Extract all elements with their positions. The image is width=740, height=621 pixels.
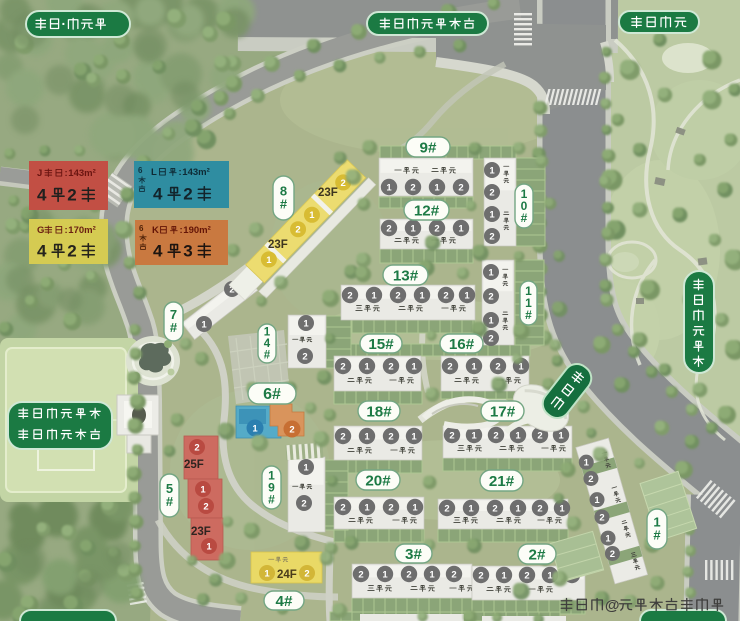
svg-text:1: 1 bbox=[558, 430, 564, 441]
svg-text:1: 1 bbox=[489, 209, 495, 220]
svg-text:2: 2 bbox=[67, 242, 76, 261]
svg-text:143m²: 143m² bbox=[68, 168, 95, 179]
svg-text:12#: 12# bbox=[414, 202, 440, 219]
svg-text:2: 2 bbox=[388, 361, 393, 372]
svg-text:1: 1 bbox=[488, 267, 494, 278]
svg-text:170m²: 170m² bbox=[68, 225, 95, 236]
svg-text:2: 2 bbox=[301, 498, 306, 509]
svg-text:2: 2 bbox=[183, 185, 192, 204]
svg-text:1: 1 bbox=[471, 361, 477, 372]
svg-text:L: L bbox=[151, 167, 157, 178]
svg-text:2: 2 bbox=[340, 431, 345, 442]
svg-text:1: 1 bbox=[584, 458, 590, 469]
svg-text:24F: 24F bbox=[277, 569, 297, 581]
svg-text:1: 1 bbox=[411, 361, 417, 372]
svg-text:1: 1 bbox=[364, 502, 370, 513]
svg-text:1: 1 bbox=[309, 210, 315, 221]
svg-text:4: 4 bbox=[153, 185, 163, 204]
svg-text:2: 2 bbox=[386, 223, 391, 234]
svg-text:1: 1 bbox=[559, 503, 565, 514]
svg-text:2: 2 bbox=[341, 178, 346, 189]
svg-text:1: 1 bbox=[303, 318, 309, 329]
svg-text:2: 2 bbox=[410, 182, 415, 193]
svg-text:2: 2 bbox=[449, 430, 454, 441]
svg-text:2: 2 bbox=[493, 430, 498, 441]
svg-text:1: 1 bbox=[364, 361, 370, 372]
svg-text:1: 1 bbox=[303, 462, 309, 473]
svg-text:2: 2 bbox=[488, 291, 493, 302]
svg-text:2: 2 bbox=[447, 361, 452, 372]
svg-text:23F: 23F bbox=[268, 239, 288, 251]
svg-text:23F: 23F bbox=[318, 187, 338, 199]
svg-text:23F: 23F bbox=[191, 526, 211, 538]
svg-text:2: 2 bbox=[289, 424, 294, 435]
svg-text:1: 1 bbox=[206, 541, 212, 552]
svg-text:1: 1 bbox=[264, 568, 270, 579]
svg-text:1: 1 bbox=[264, 327, 271, 339]
svg-text:1: 1 bbox=[471, 430, 477, 441]
svg-text:1: 1 bbox=[200, 484, 206, 495]
svg-text:1: 1 bbox=[419, 290, 425, 301]
svg-text:K: K bbox=[152, 225, 159, 236]
svg-text:6#: 6# bbox=[263, 386, 281, 403]
svg-text:1: 1 bbox=[489, 165, 495, 176]
svg-text:2: 2 bbox=[478, 570, 483, 581]
svg-text:1: 1 bbox=[429, 569, 435, 580]
svg-text:1: 1 bbox=[605, 534, 611, 545]
svg-text:2: 2 bbox=[488, 333, 493, 344]
svg-text:2: 2 bbox=[492, 503, 497, 514]
svg-text:1: 1 bbox=[468, 503, 474, 514]
svg-text:2: 2 bbox=[295, 225, 300, 236]
svg-text:2: 2 bbox=[599, 512, 604, 523]
svg-text:3: 3 bbox=[183, 242, 192, 261]
svg-text:25F: 25F bbox=[184, 459, 204, 471]
svg-text:2: 2 bbox=[524, 570, 529, 581]
svg-text:2: 2 bbox=[489, 187, 494, 198]
svg-text:1: 1 bbox=[464, 290, 470, 301]
svg-text:2: 2 bbox=[203, 501, 208, 512]
svg-text:#: # bbox=[170, 320, 178, 335]
svg-text:2: 2 bbox=[444, 503, 449, 514]
svg-text:@: @ bbox=[605, 597, 620, 614]
svg-text:2: 2 bbox=[443, 290, 448, 301]
svg-text::: : bbox=[65, 225, 68, 236]
svg-text:3#: 3# bbox=[405, 546, 422, 563]
svg-text:#: # bbox=[268, 492, 275, 506]
svg-text:2: 2 bbox=[451, 569, 456, 580]
svg-text:2: 2 bbox=[347, 290, 352, 301]
svg-text:6: 6 bbox=[138, 166, 143, 175]
svg-text:1: 1 bbox=[364, 431, 370, 442]
svg-text:190m²: 190m² bbox=[183, 225, 210, 236]
svg-text:1: 1 bbox=[594, 495, 600, 506]
svg-text:2: 2 bbox=[537, 430, 542, 441]
svg-text:1: 1 bbox=[201, 319, 207, 330]
svg-text:21#: 21# bbox=[489, 473, 515, 490]
svg-text:1: 1 bbox=[458, 223, 464, 234]
svg-text:4: 4 bbox=[37, 186, 47, 205]
svg-text:143m²: 143m² bbox=[182, 167, 209, 178]
svg-text:1: 1 bbox=[410, 223, 416, 234]
svg-text:1: 1 bbox=[266, 255, 272, 266]
svg-text::: : bbox=[65, 168, 68, 179]
svg-text:1: 1 bbox=[434, 182, 440, 193]
svg-text:2: 2 bbox=[610, 549, 615, 560]
svg-text:#: # bbox=[264, 350, 271, 362]
svg-text:4: 4 bbox=[153, 242, 163, 261]
svg-text:#: # bbox=[525, 308, 532, 322]
svg-text:2: 2 bbox=[495, 361, 500, 372]
svg-text:2#: 2# bbox=[529, 546, 546, 563]
svg-text:1: 1 bbox=[501, 570, 507, 581]
svg-text:2: 2 bbox=[489, 231, 494, 242]
svg-text:2: 2 bbox=[304, 568, 309, 579]
svg-text:2: 2 bbox=[537, 503, 542, 514]
svg-text:2: 2 bbox=[388, 502, 393, 513]
svg-text:1: 1 bbox=[411, 431, 417, 442]
svg-text:#: # bbox=[166, 494, 174, 509]
svg-text:1: 1 bbox=[371, 290, 377, 301]
svg-text:2: 2 bbox=[434, 223, 439, 234]
svg-text:4: 4 bbox=[264, 338, 271, 350]
svg-text:13#: 13# bbox=[393, 267, 419, 284]
svg-text:2: 2 bbox=[395, 290, 400, 301]
svg-text:2: 2 bbox=[194, 442, 199, 453]
svg-text:1: 1 bbox=[515, 430, 521, 441]
svg-text:1: 1 bbox=[488, 315, 494, 326]
svg-text:2: 2 bbox=[358, 569, 363, 580]
svg-text:1: 1 bbox=[515, 503, 521, 514]
svg-text::: : bbox=[180, 225, 183, 236]
svg-text:16#: 16# bbox=[449, 336, 475, 353]
svg-text:17#: 17# bbox=[490, 403, 516, 420]
svg-text:9#: 9# bbox=[420, 139, 437, 156]
svg-text::: : bbox=[179, 167, 182, 178]
svg-text:2: 2 bbox=[458, 182, 463, 193]
svg-text:18#: 18# bbox=[366, 403, 392, 420]
svg-text:6: 6 bbox=[139, 224, 144, 233]
svg-text:#: # bbox=[653, 528, 661, 543]
svg-text:2: 2 bbox=[388, 431, 393, 442]
svg-text:2: 2 bbox=[588, 474, 593, 485]
svg-text:1: 1 bbox=[252, 423, 258, 434]
svg-text:#: # bbox=[280, 197, 288, 212]
svg-text:15#: 15# bbox=[368, 336, 394, 353]
svg-text:2: 2 bbox=[340, 361, 345, 372]
svg-text:2: 2 bbox=[340, 502, 345, 513]
svg-text:·: · bbox=[62, 17, 67, 32]
svg-text:#: # bbox=[521, 211, 528, 225]
svg-text:G: G bbox=[37, 225, 44, 236]
svg-text:1: 1 bbox=[412, 502, 418, 513]
svg-text:4: 4 bbox=[37, 242, 47, 261]
svg-text:2: 2 bbox=[302, 351, 307, 362]
svg-text:4#: 4# bbox=[276, 593, 293, 610]
svg-text:20#: 20# bbox=[365, 472, 391, 489]
svg-text:1: 1 bbox=[382, 569, 388, 580]
svg-text:1: 1 bbox=[386, 182, 392, 193]
svg-text:2: 2 bbox=[406, 569, 411, 580]
svg-text:J: J bbox=[37, 168, 42, 179]
svg-text:2: 2 bbox=[67, 186, 76, 205]
